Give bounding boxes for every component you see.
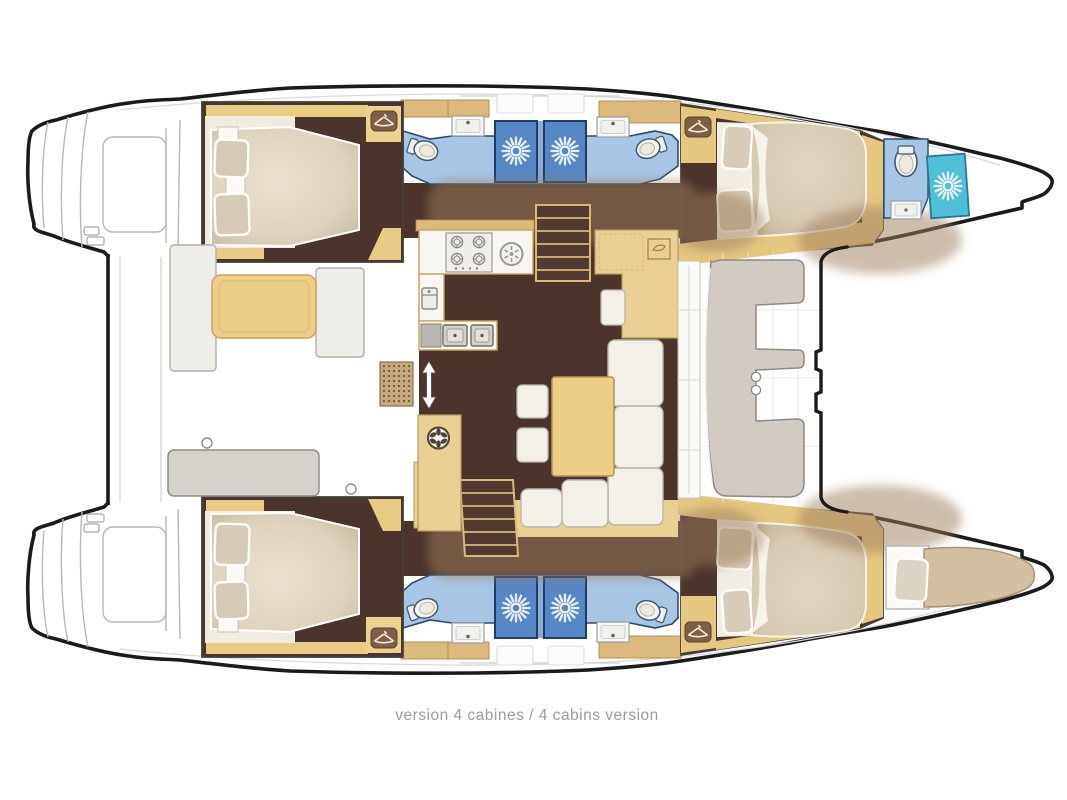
svg-text:version 4 cabines / 4 cabins v: version 4 cabines / 4 cabins version xyxy=(395,707,659,724)
